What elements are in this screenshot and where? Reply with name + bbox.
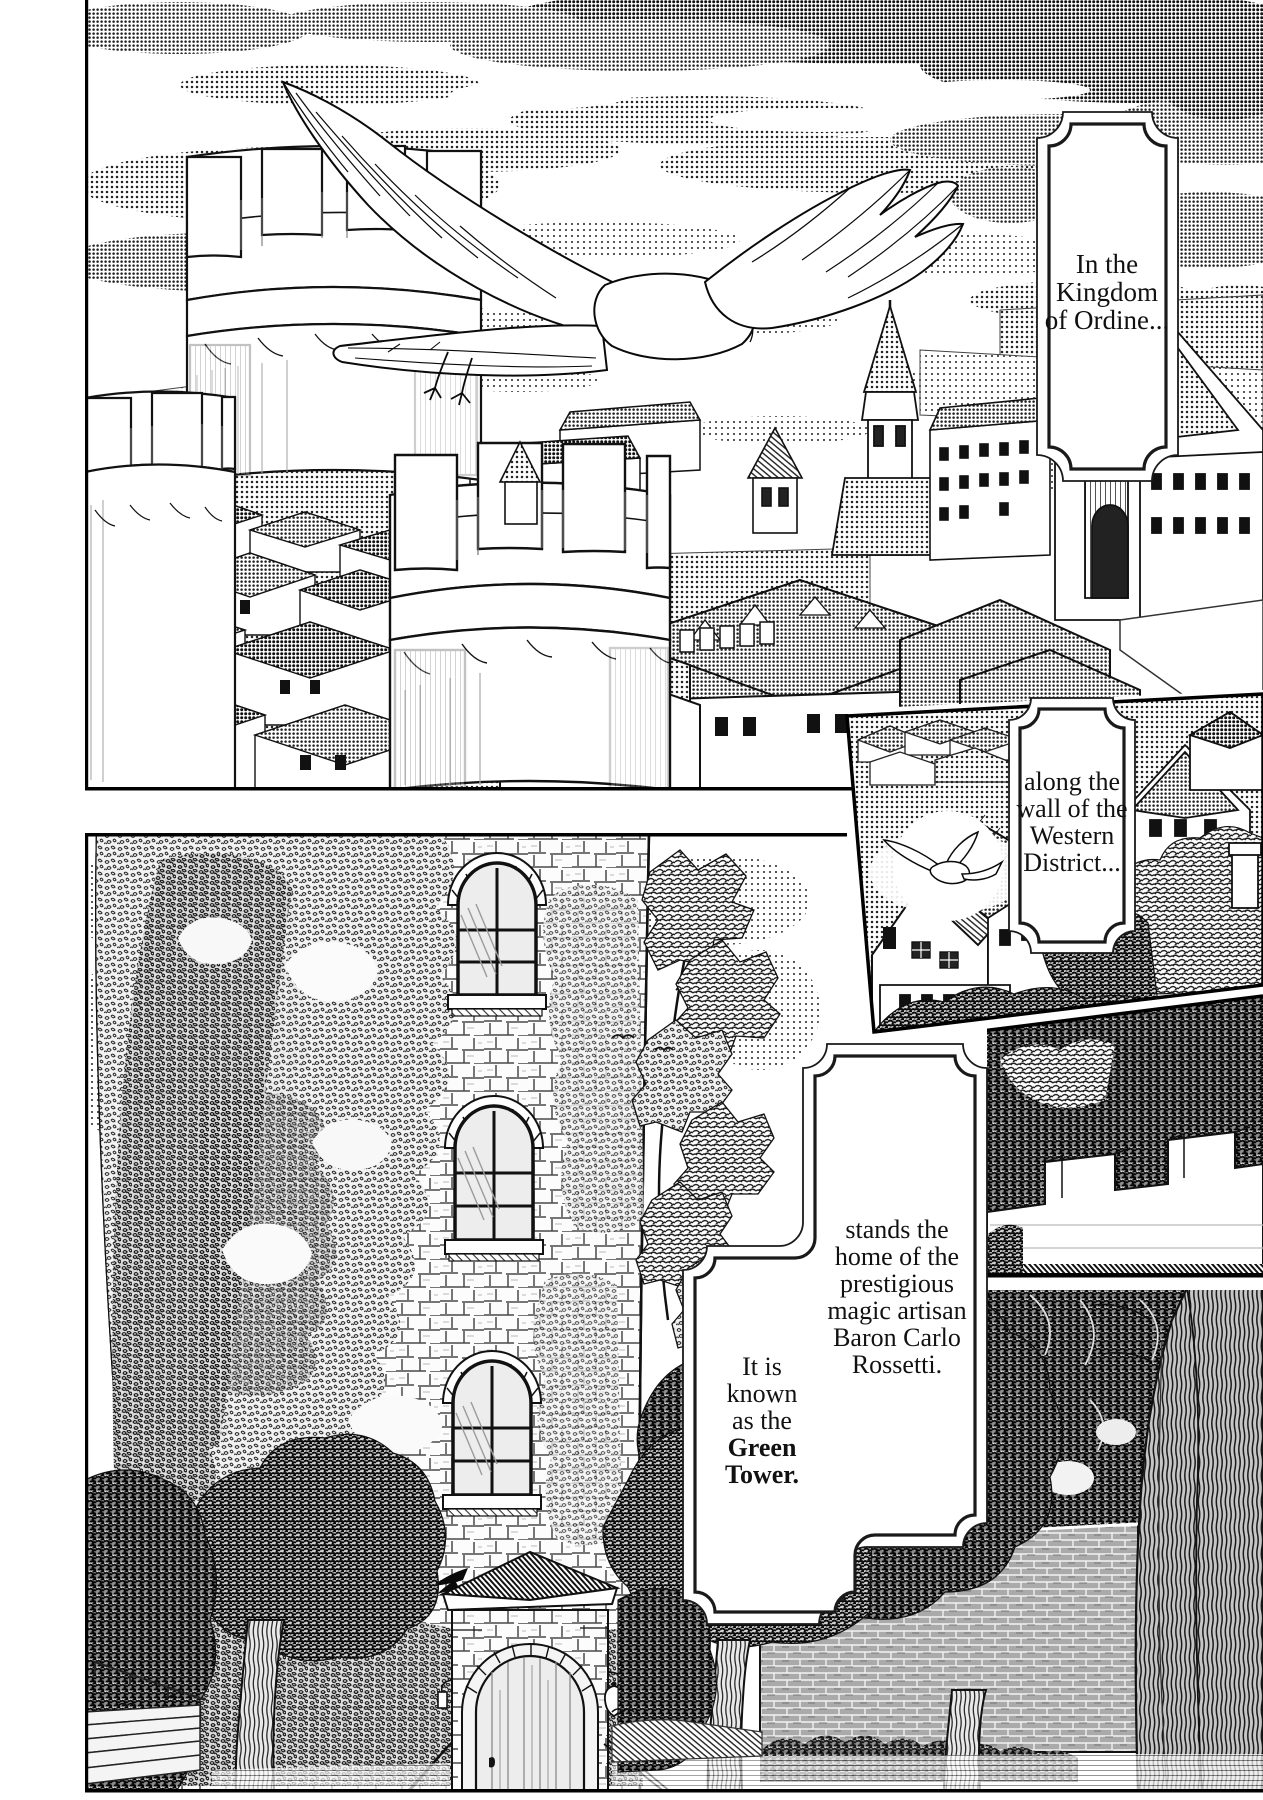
- svg-text:home of the: home of the: [835, 1242, 959, 1271]
- svg-text:along the: along the: [1024, 767, 1120, 796]
- svg-text:stands the: stands the: [845, 1215, 948, 1244]
- svg-text:wall of the: wall of the: [1016, 794, 1127, 823]
- svg-text:Baron Carlo: Baron Carlo: [833, 1323, 961, 1352]
- svg-text:Tower.: Tower.: [725, 1460, 799, 1489]
- svg-text:District...: District...: [1023, 848, 1121, 877]
- svg-text:It is: It is: [742, 1352, 782, 1381]
- svg-text:prestigious: prestigious: [840, 1269, 954, 1298]
- svg-text:magic artisan: magic artisan: [827, 1296, 966, 1325]
- svg-text:In the: In the: [1076, 249, 1138, 279]
- svg-text:Green: Green: [728, 1433, 797, 1462]
- svg-text:as the: as the: [732, 1406, 792, 1435]
- svg-text:Kingdom: Kingdom: [1056, 277, 1158, 307]
- svg-text:known: known: [727, 1379, 798, 1408]
- svg-text:Western: Western: [1030, 821, 1115, 850]
- svg-text:of Ordine...: of Ordine...: [1045, 305, 1169, 335]
- svg-text:Rossetti.: Rossetti.: [852, 1350, 942, 1379]
